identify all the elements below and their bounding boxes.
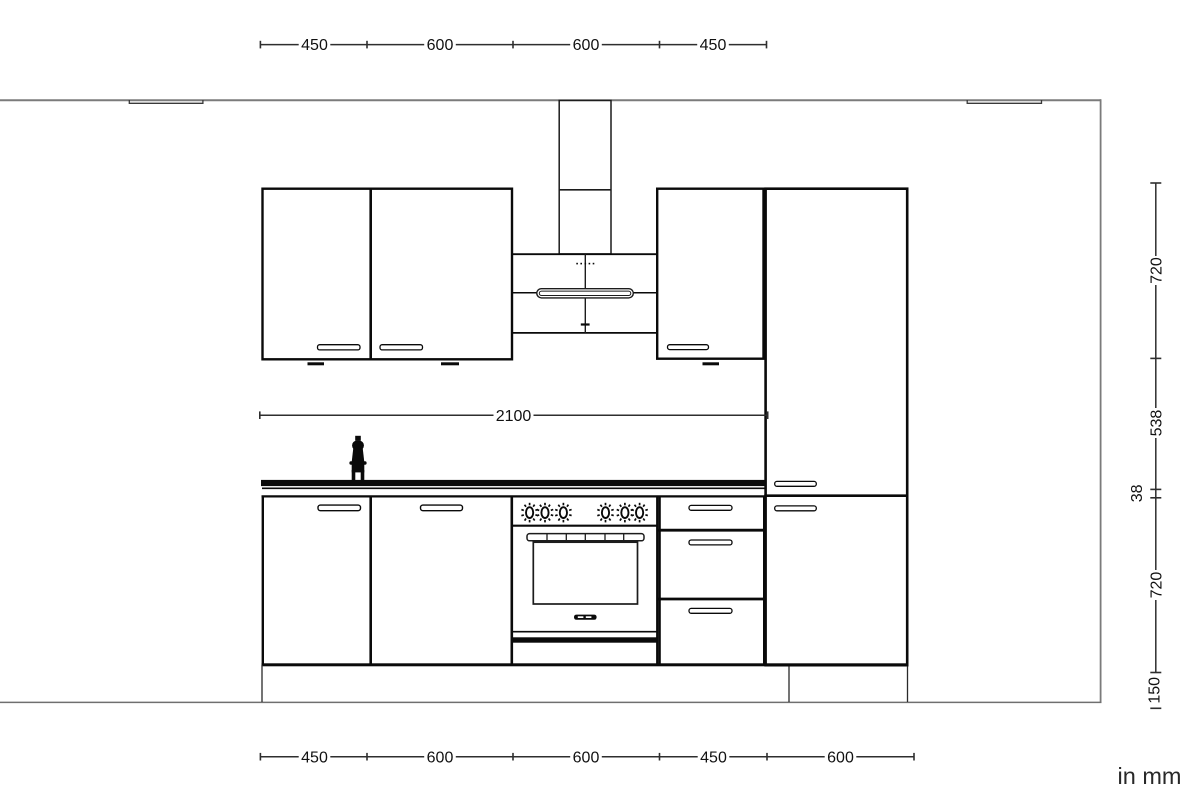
svg-text:2100: 2100 <box>496 408 532 425</box>
svg-text:600: 600 <box>827 749 854 766</box>
svg-text:450: 450 <box>700 37 727 54</box>
svg-text:450: 450 <box>301 749 328 766</box>
svg-text:in mm: in mm <box>1118 763 1182 789</box>
svg-text:38: 38 <box>1129 484 1146 502</box>
svg-text:538: 538 <box>1148 410 1165 437</box>
svg-text:720: 720 <box>1148 572 1165 599</box>
svg-text:600: 600 <box>573 749 600 766</box>
svg-text:600: 600 <box>573 37 600 54</box>
svg-text:450: 450 <box>301 37 328 54</box>
svg-text:450: 450 <box>700 749 727 766</box>
svg-text:150: 150 <box>1147 677 1164 704</box>
svg-text:600: 600 <box>427 749 454 766</box>
svg-text:720: 720 <box>1148 257 1165 284</box>
svg-text:600: 600 <box>427 37 454 54</box>
